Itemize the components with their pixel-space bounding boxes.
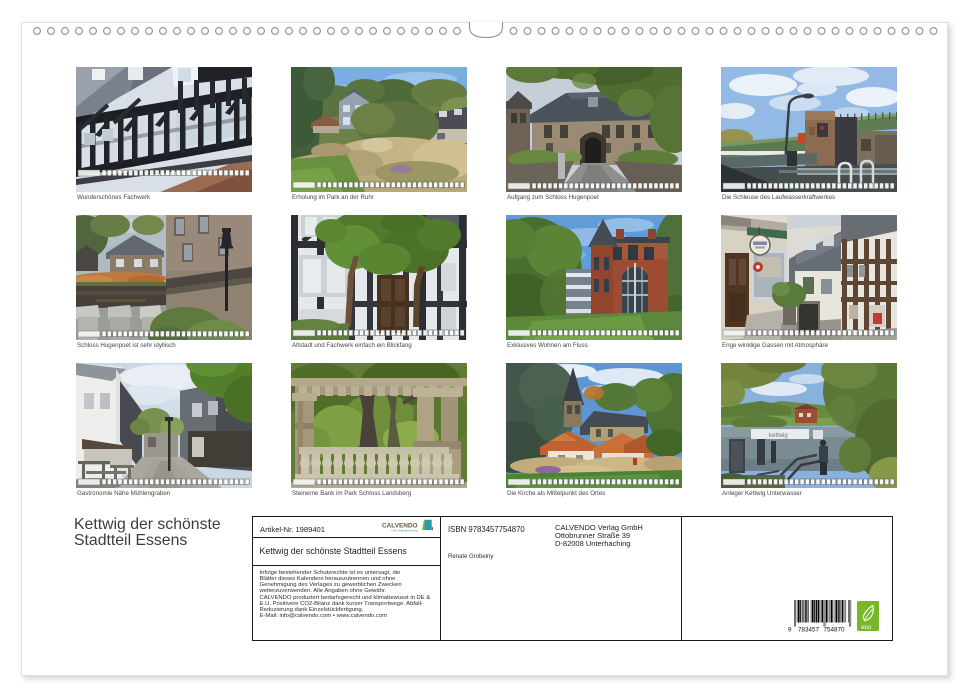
- svg-text:783457: 783457: [798, 626, 819, 633]
- svg-text:754870: 754870: [823, 626, 844, 633]
- svg-text:Dein Kalenderverlag: Dein Kalenderverlag: [392, 528, 418, 532]
- svg-text:9: 9: [788, 626, 792, 633]
- svg-text:kettwig: kettwig: [769, 433, 788, 439]
- svg-text:eco: eco: [861, 623, 872, 630]
